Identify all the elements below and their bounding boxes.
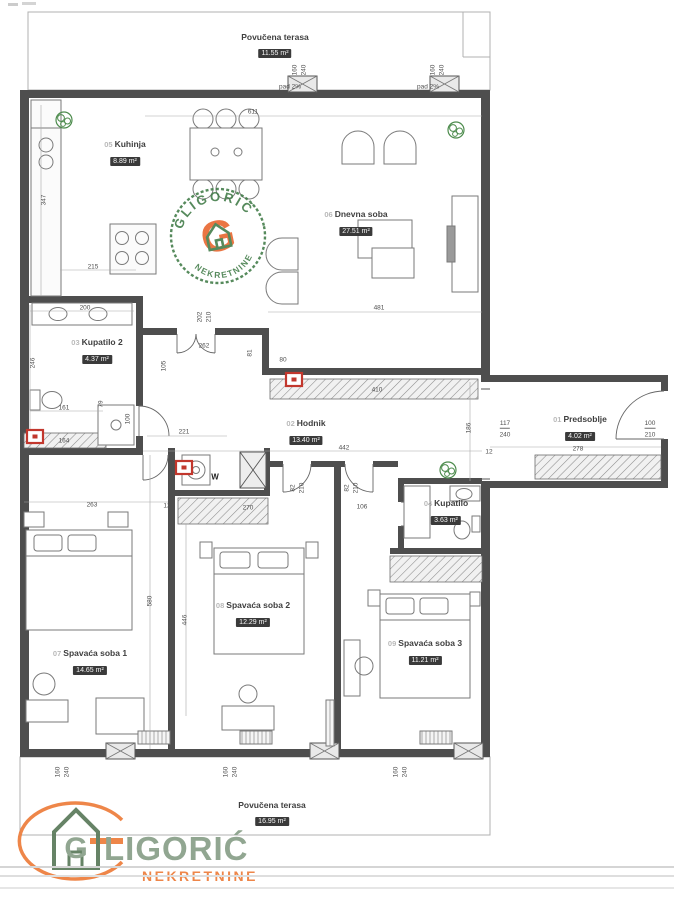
- logo-monogram: G: [64, 832, 87, 865]
- floorplan-page: Povučena terasa11.55 m²05Kuhinja8.89 m²0…: [0, 0, 674, 900]
- scan-artifact: [8, 2, 36, 6]
- bathroom-fixtures: [404, 486, 480, 539]
- bedroom2-furniture: [200, 542, 334, 746]
- bedroom1-furniture: [24, 512, 170, 744]
- agency-watermark-logo: G LIGORIĆ NEKRETNINE: [6, 794, 256, 894]
- livingroom-furniture: [266, 131, 478, 304]
- floorplan-drawing: [0, 0, 674, 900]
- scan-line: [0, 887, 674, 889]
- logo-name: LIGORIĆ: [104, 830, 249, 867]
- scan-line: [0, 875, 674, 877]
- kitchen-fixtures: [31, 100, 156, 296]
- agency-stamp: GLIGORIĆ NEKRETNINE G: [148, 166, 288, 306]
- stamp-monogram: G: [196, 209, 240, 264]
- scan-line: [0, 866, 674, 868]
- bedroom3-furniture: [344, 590, 480, 744]
- bathroom2-fixtures: [30, 303, 134, 445]
